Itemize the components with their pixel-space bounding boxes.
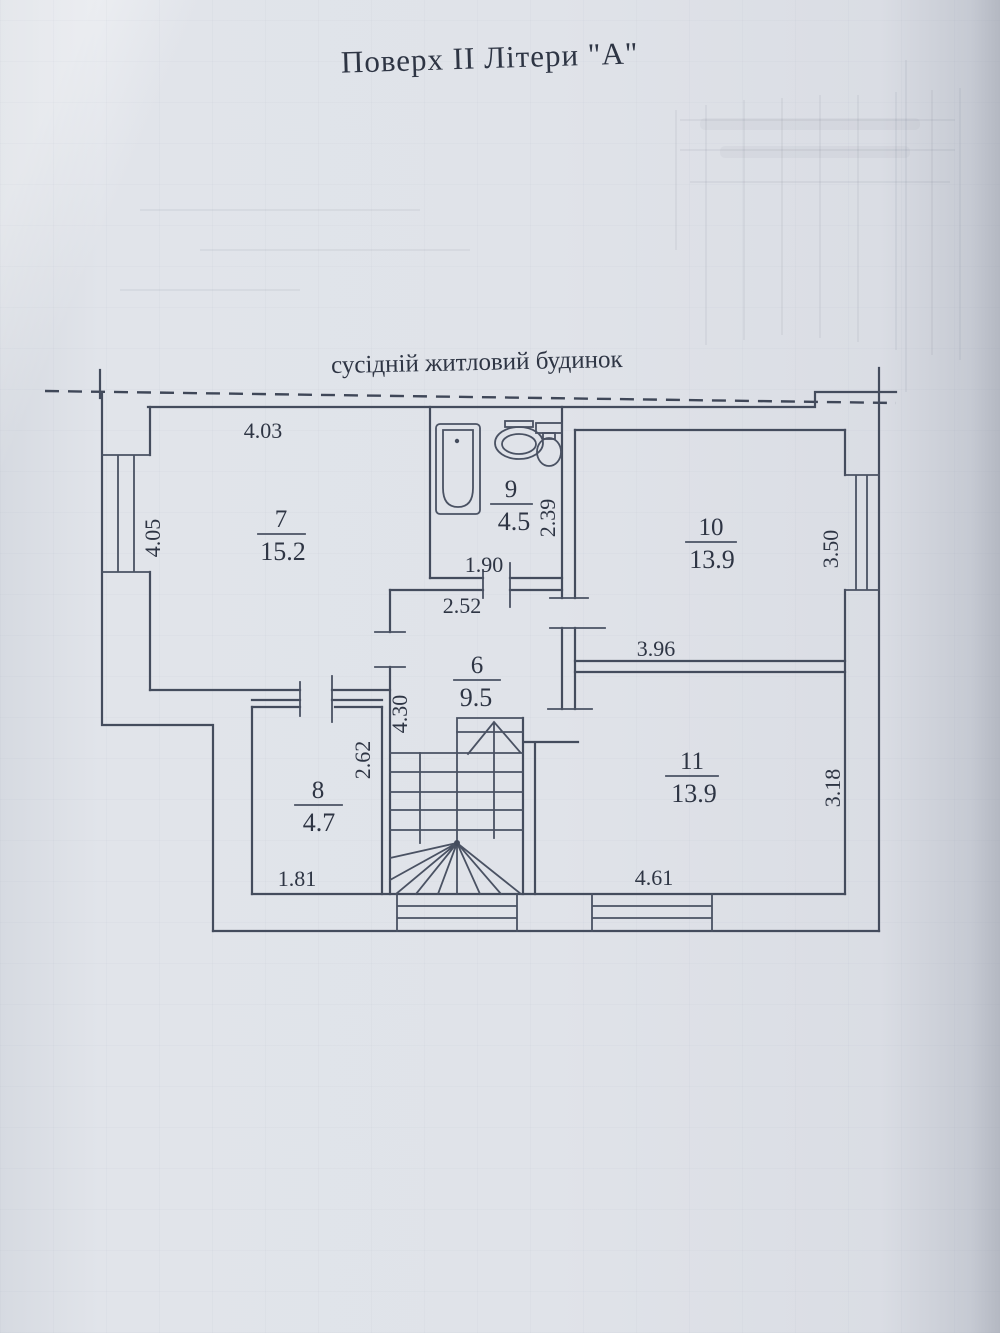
room-11-label: 11 13.9 <box>666 748 718 808</box>
dim-room11-height: 3.18 <box>820 769 845 808</box>
room-11-area: 13.9 <box>671 779 717 808</box>
dim-hall-width: 2.52 <box>443 593 482 618</box>
dim-room11-width: 4.61 <box>635 865 674 890</box>
dim-bath-width: 1.90 <box>465 552 504 577</box>
room-7-label: 7 15.2 <box>258 506 306 566</box>
room-6-area: 9.5 <box>460 683 493 712</box>
door-jamb-ticks <box>300 563 605 722</box>
bathtub-icon <box>436 424 480 514</box>
room-10-number: 10 <box>699 514 724 541</box>
room-7-area: 15.2 <box>260 537 306 566</box>
dim-room7-width: 4.03 <box>244 418 283 443</box>
stair-direction-arrow-icon <box>468 722 520 838</box>
room-8-area: 4.7 <box>303 808 336 837</box>
dim-room10-height: 3.50 <box>818 530 843 569</box>
room-6-label: 6 9.5 <box>454 652 500 712</box>
room-10-label: 10 13.9 <box>686 514 736 574</box>
room-11-number: 11 <box>680 748 704 775</box>
dim-room10-width: 3.96 <box>637 636 676 661</box>
room-9-area: 4.5 <box>498 507 531 536</box>
room-9-label: 9 4.5 <box>491 476 532 536</box>
staircase <box>390 718 523 894</box>
dimension-labels: 4.03 4.05 1.90 2.39 2.52 4.30 3.96 3.50 … <box>140 418 845 891</box>
dim-bath-height: 2.39 <box>535 499 560 538</box>
toilet-icon <box>536 423 562 466</box>
window-bottom-right <box>592 894 712 931</box>
room-9-number: 9 <box>505 476 518 503</box>
room-10-area: 13.9 <box>689 545 735 574</box>
room-6-number: 6 <box>471 652 484 679</box>
dim-room7-height: 4.05 <box>140 519 165 558</box>
interior-walls <box>150 407 845 894</box>
winder-steps <box>390 840 521 894</box>
floor-plan-drawing: Поверх II Літери "А" сусідній житловий б… <box>0 0 1000 1333</box>
neighbor-building-label: сусідній житловий будинок <box>331 346 624 379</box>
room-8-number: 8 <box>312 777 325 804</box>
dim-hall-height: 4.30 <box>387 695 412 734</box>
room-7-number: 7 <box>275 506 288 533</box>
room-8-label: 8 4.7 <box>295 777 342 837</box>
window-right <box>845 475 879 590</box>
dim-room8-width: 1.81 <box>278 866 317 891</box>
window-bottom-left <box>397 894 517 931</box>
scanned-floor-plan-page: Поверх II Літери "А" сусідній житловий б… <box>0 0 1000 1333</box>
paper-bleed-through <box>120 60 960 392</box>
page-title: Поверх II Літери "А" <box>340 35 639 79</box>
dim-room8-height: 2.62 <box>350 741 375 780</box>
